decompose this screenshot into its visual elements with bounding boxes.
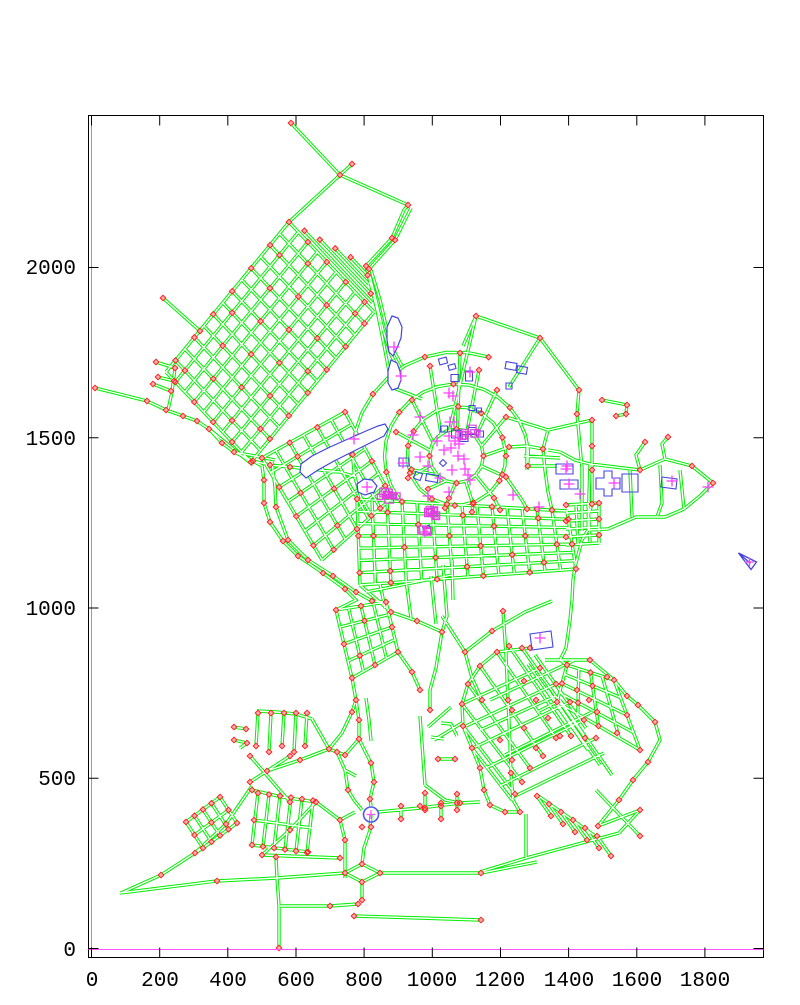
svg-text:500: 500 — [38, 769, 76, 792]
svg-text:1400: 1400 — [544, 970, 594, 993]
svg-text:200: 200 — [141, 970, 179, 993]
svg-text:1600: 1600 — [612, 970, 662, 993]
svg-text:800: 800 — [345, 970, 383, 993]
svg-text:0: 0 — [86, 970, 99, 993]
svg-text:1200: 1200 — [475, 970, 525, 993]
svg-text:0: 0 — [63, 940, 76, 963]
svg-text:600: 600 — [277, 970, 315, 993]
svg-text:1800: 1800 — [680, 970, 730, 993]
svg-text:1500: 1500 — [26, 429, 76, 452]
svg-text:1000: 1000 — [407, 970, 457, 993]
svg-text:400: 400 — [209, 970, 247, 993]
svg-text:1000: 1000 — [26, 599, 76, 622]
svg-text:2000: 2000 — [26, 258, 76, 281]
